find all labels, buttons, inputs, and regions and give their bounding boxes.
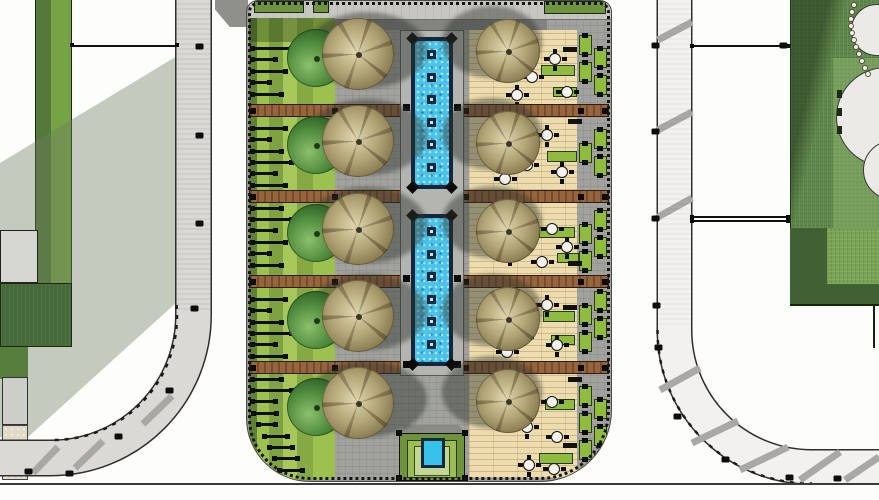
line-end-tick <box>690 44 694 48</box>
stepping-stone <box>849 30 855 36</box>
road-bollard-post <box>834 476 841 481</box>
left-road-texture <box>176 0 211 310</box>
road-bollard-post <box>66 471 73 476</box>
road-bollard-post <box>780 43 787 48</box>
road-bollard-post <box>652 43 659 48</box>
stepping-stone <box>865 71 871 77</box>
stepping-stone <box>848 23 854 29</box>
road-bollard-post <box>25 469 32 474</box>
road-bollard-post <box>196 221 203 226</box>
left-road <box>0 0 194 458</box>
lawn-post <box>837 90 842 98</box>
stepping-stone <box>856 51 862 57</box>
bottom-property-line <box>0 483 879 485</box>
road-bollard-post <box>652 129 659 134</box>
planter-bar <box>594 453 607 473</box>
right-road <box>675 0 879 467</box>
lawn-post <box>837 108 842 116</box>
layout-line <box>692 220 788 222</box>
road-bollard-post <box>786 475 793 480</box>
layout-line <box>692 45 788 47</box>
lawn-post <box>837 126 842 134</box>
road-bollard-post <box>653 303 660 308</box>
road-bollard-post <box>166 388 173 393</box>
road-bollard-post <box>722 457 729 462</box>
line-end-tick <box>690 219 694 223</box>
road-bollard-post <box>115 434 122 439</box>
layout-line <box>692 216 788 218</box>
line-end-tick <box>175 43 179 47</box>
right-road-texture <box>659 0 692 325</box>
line-end-tick <box>70 43 74 47</box>
stepping-stone <box>848 16 854 22</box>
road-bollard-post <box>655 345 662 350</box>
road-bollard-post <box>674 414 681 419</box>
stepping-stone <box>859 58 865 64</box>
stepping-stone <box>851 2 857 8</box>
road-bollard-post <box>196 44 203 49</box>
road-bollard-post <box>191 306 198 311</box>
layout-line <box>72 45 177 47</box>
road-bollard-post <box>652 216 659 221</box>
stepping-stone <box>849 9 855 15</box>
site-plan-canvas <box>0 0 879 500</box>
plaza-bollard-edge <box>248 2 610 480</box>
plaza-island <box>246 0 612 482</box>
stepping-stone <box>853 44 859 50</box>
line-end-tick <box>786 219 790 223</box>
road-bollard-post <box>196 133 203 138</box>
stepping-stone <box>851 37 857 43</box>
